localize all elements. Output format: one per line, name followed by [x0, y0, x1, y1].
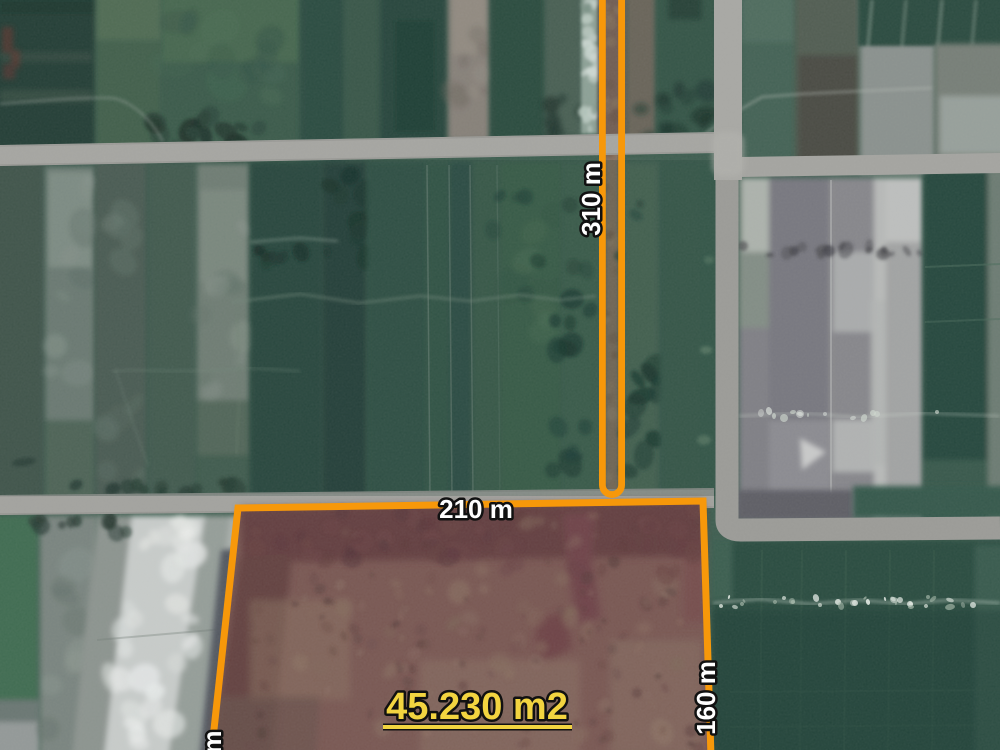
svg-text:310 m: 310 m [576, 162, 606, 236]
svg-text:m: m [197, 730, 227, 750]
svg-text:160 m: 160 m [691, 661, 721, 735]
svg-text:45.230 m2: 45.230 m2 [386, 686, 568, 728]
svg-text:210 m: 210 m [439, 494, 513, 524]
